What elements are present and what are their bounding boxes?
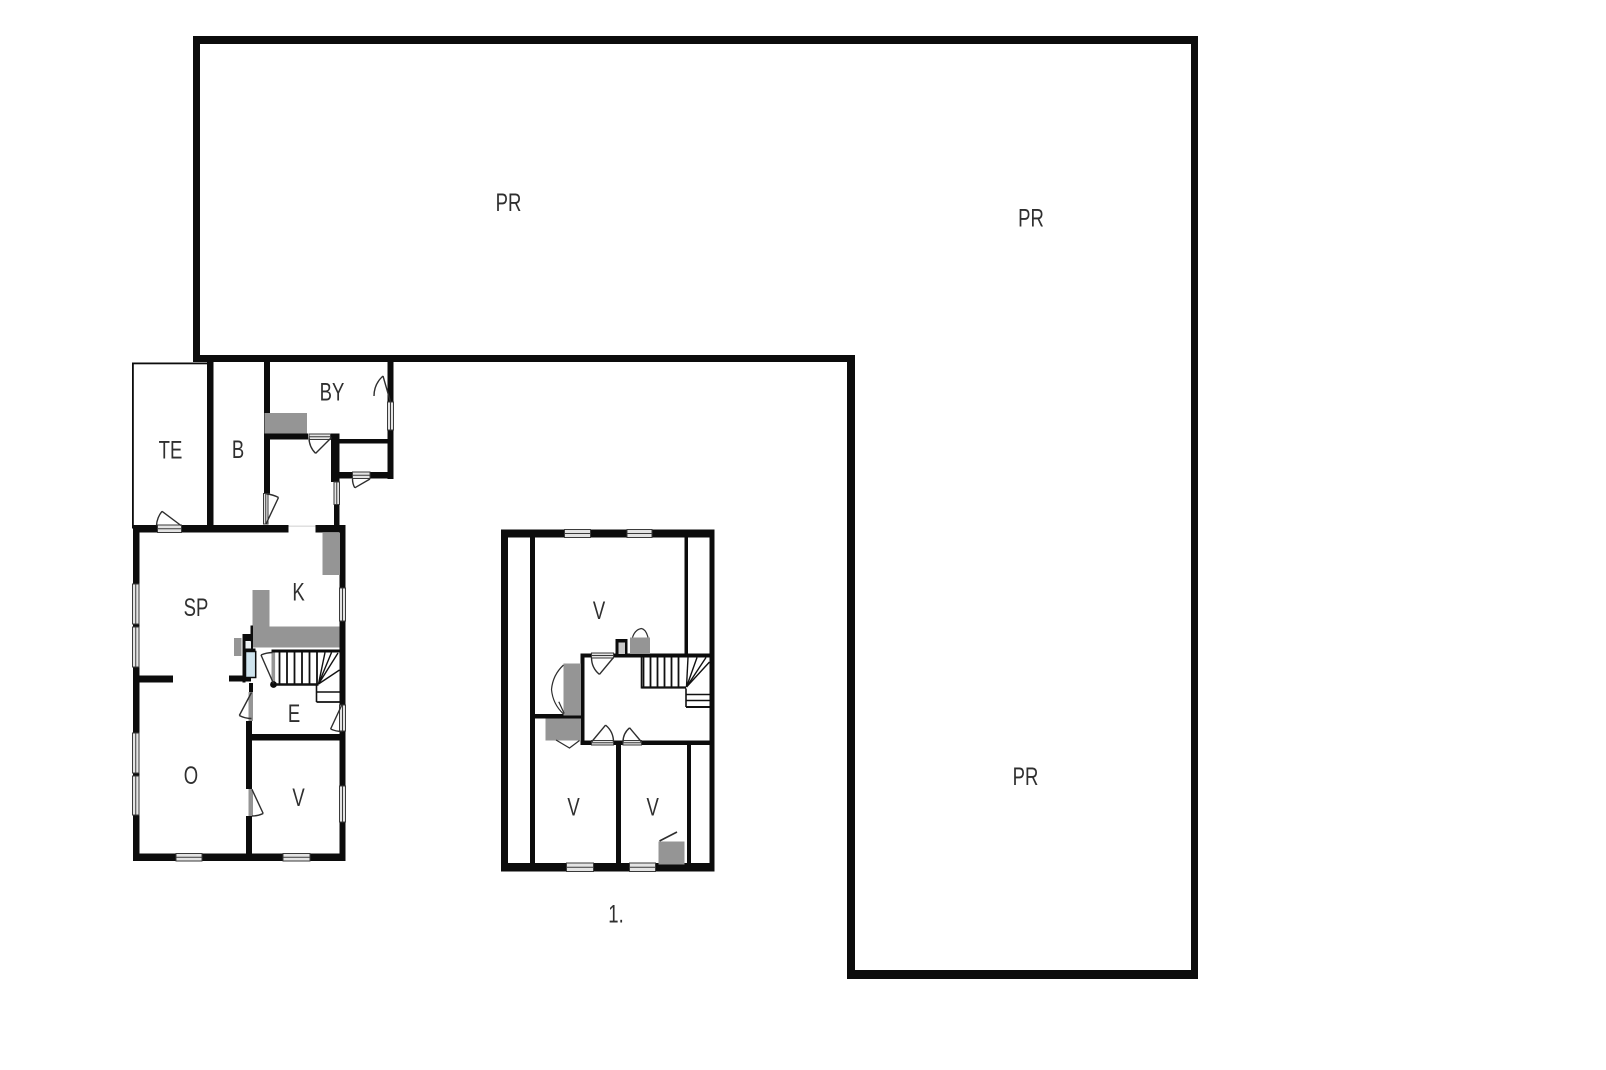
svg-text:E: E [288, 699, 300, 727]
svg-text:PR: PR [496, 188, 522, 216]
svg-text:TE: TE [159, 436, 183, 464]
svg-text:PR: PR [1013, 762, 1039, 790]
svg-text:V: V [292, 783, 305, 811]
svg-text:V: V [647, 793, 660, 821]
svg-text:PR: PR [1018, 204, 1044, 232]
svg-text:1.: 1. [608, 900, 623, 928]
svg-text:BY: BY [320, 378, 345, 406]
svg-text:SP: SP [184, 593, 209, 621]
svg-text:B: B [232, 435, 244, 463]
svg-text:V: V [593, 596, 606, 624]
svg-text:K: K [292, 578, 305, 606]
svg-text:V: V [567, 793, 580, 821]
svg-text:O: O [184, 761, 198, 789]
